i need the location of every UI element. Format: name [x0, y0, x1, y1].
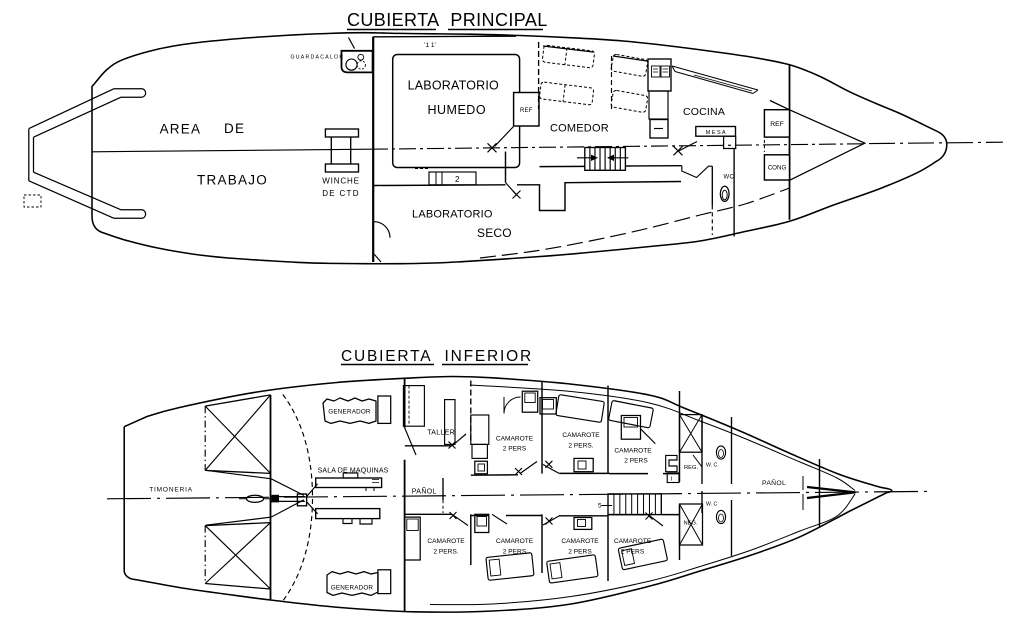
svg-text:COCINA: COCINA — [683, 106, 725, 118]
svg-text:COMEDOR: COMEDOR — [550, 123, 609, 135]
svg-text:LABORATORIO: LABORATORIO — [412, 209, 493, 221]
svg-text:W. C: W. C — [706, 502, 717, 508]
svg-text:CAMAROTE: CAMAROTE — [496, 436, 534, 443]
svg-text:2 PERS: 2 PERS — [624, 458, 648, 465]
svg-text:M E S A: M E S A — [706, 130, 726, 136]
svg-text:REF: REF — [520, 108, 533, 114]
svg-text:AREA: AREA — [160, 122, 202, 137]
svg-text:DE CTD: DE CTD — [322, 189, 360, 198]
svg-text:CAMAROTE: CAMAROTE — [427, 538, 465, 545]
svg-text:TRABAJO: TRABAJO — [197, 172, 268, 187]
svg-text:CONG: CONG — [768, 165, 787, 172]
svg-text:CUBIERTA PRINCIPAL: CUBIERTA PRINCIPAL — [347, 10, 548, 30]
svg-text:GUARDACALOR: GUARDACALOR — [291, 55, 345, 61]
svg-text:TIMONERIA: TIMONERIA — [149, 487, 193, 494]
svg-text:2 PERS.: 2 PERS. — [568, 443, 593, 450]
svg-text:CAMAROTE: CAMAROTE — [614, 448, 652, 455]
svg-text:CAMAROTE: CAMAROTE — [562, 432, 600, 439]
svg-text:CUBIERTA INFERIOR: CUBIERTA INFERIOR — [341, 348, 533, 365]
svg-text:2: 2 — [455, 175, 460, 184]
svg-text:LABORATORIO: LABORATORIO — [408, 78, 499, 92]
svg-text:2 PERS: 2 PERS — [503, 446, 527, 453]
svg-text:PAÑOL: PAÑOL — [762, 478, 786, 487]
svg-text:HUMEDO: HUMEDO — [428, 103, 487, 117]
svg-text:WINCHE: WINCHE — [322, 177, 360, 186]
svg-text:CAMAROTE: CAMAROTE — [496, 538, 534, 545]
svg-text:GENERADOR: GENERADOR — [328, 409, 371, 416]
svg-text:GENERADOR: GENERADOR — [331, 585, 374, 592]
svg-text:REG.: REG. — [684, 465, 699, 471]
svg-text:’1 1’: ’1 1’ — [424, 42, 436, 49]
svg-text:WC: WC — [724, 175, 735, 181]
svg-text:REF: REF — [770, 121, 784, 128]
svg-text:W. C.: W. C. — [706, 463, 719, 469]
svg-text:2 PERS: 2 PERS — [568, 549, 592, 556]
svg-text:PAÑOL: PAÑOL — [412, 486, 437, 495]
svg-text:2 PERS.: 2 PERS. — [433, 549, 458, 556]
svg-text:TALLER: TALLER — [427, 430, 455, 437]
svg-text:SECO: SECO — [477, 226, 512, 240]
svg-text:DE: DE — [224, 121, 245, 136]
svg-text:CAMAROTE: CAMAROTE — [614, 538, 652, 545]
svg-text:5: 5 — [598, 503, 602, 510]
svg-text:NEG.: NEG. — [684, 521, 699, 527]
svg-text:I: I — [671, 477, 673, 483]
svg-text:CAMAROTE: CAMAROTE — [561, 538, 599, 545]
